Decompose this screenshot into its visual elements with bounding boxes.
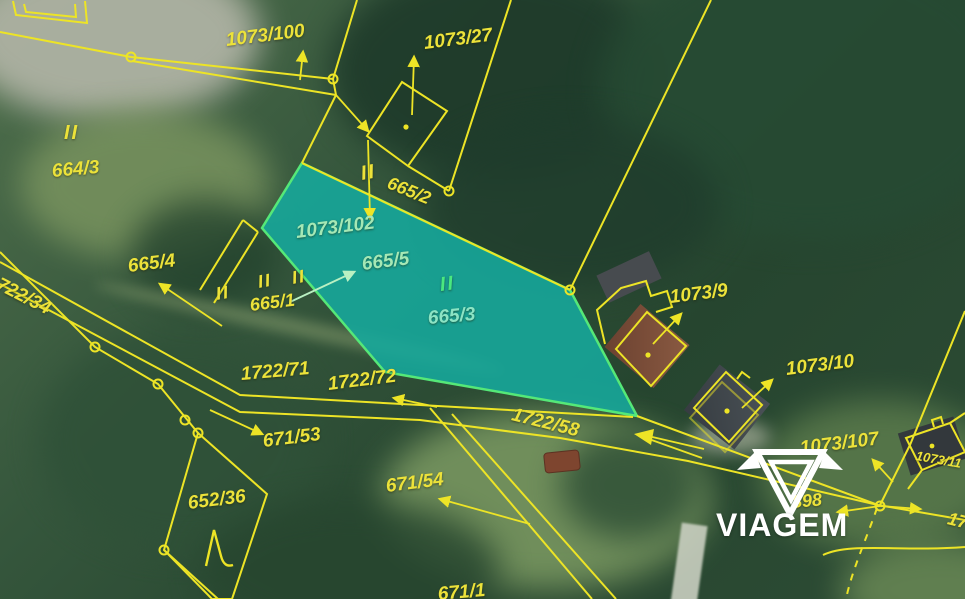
road-edge: [452, 414, 616, 599]
viagem-wordmark: VIAGEM: [716, 507, 848, 544]
boundary-line: [24, 4, 76, 17]
boundary-line: [908, 470, 922, 489]
parcel-outline-1073-27: [367, 82, 447, 166]
arrow-1073-27: [412, 57, 414, 115]
boundary-line: [823, 547, 965, 555]
boundary-line: [570, 0, 711, 290]
land-use-symbol-ii: II: [439, 272, 457, 297]
boundary-line: [950, 413, 965, 423]
boundary-line: [132, 61, 336, 95]
arrow-1073-10: [742, 380, 772, 408]
building-outline-1073-9: [616, 312, 686, 386]
boundary-line-dashed: [846, 508, 877, 599]
building-dot: [645, 352, 650, 357]
boundary-line: [880, 311, 965, 505]
parcel-label-664-3: 664/3: [51, 157, 100, 183]
land-use-symbol-ii: II: [64, 122, 79, 145]
building-dot: [403, 124, 408, 129]
boundary-line: [302, 95, 336, 163]
boundary-line: [164, 550, 218, 599]
map-canvas[interactable]: 1073/100 1073/27 664/3 II 665/2 II 1073/…: [0, 0, 965, 599]
building-dot: [724, 408, 729, 413]
building-dot: [930, 444, 935, 449]
land-use-glyph: [206, 530, 233, 566]
boundary-line: [333, 0, 357, 79]
parcel-label-671-1: 671/1: [437, 580, 486, 599]
parcel-outline-652-36: [164, 433, 267, 599]
arrow-665-2: [336, 95, 368, 131]
parcel-label-665-3: 665/3: [427, 304, 476, 330]
boundary-line: [0, 32, 131, 57]
arrow-665-4: [160, 284, 222, 326]
boundary-line: [243, 220, 258, 232]
building-chimney-mark: [737, 372, 750, 379]
arrow-1073-9: [653, 314, 681, 344]
arrow-1073-107: [873, 460, 893, 482]
boundary-line: [200, 220, 243, 290]
arrow-road-head: [634, 429, 654, 445]
